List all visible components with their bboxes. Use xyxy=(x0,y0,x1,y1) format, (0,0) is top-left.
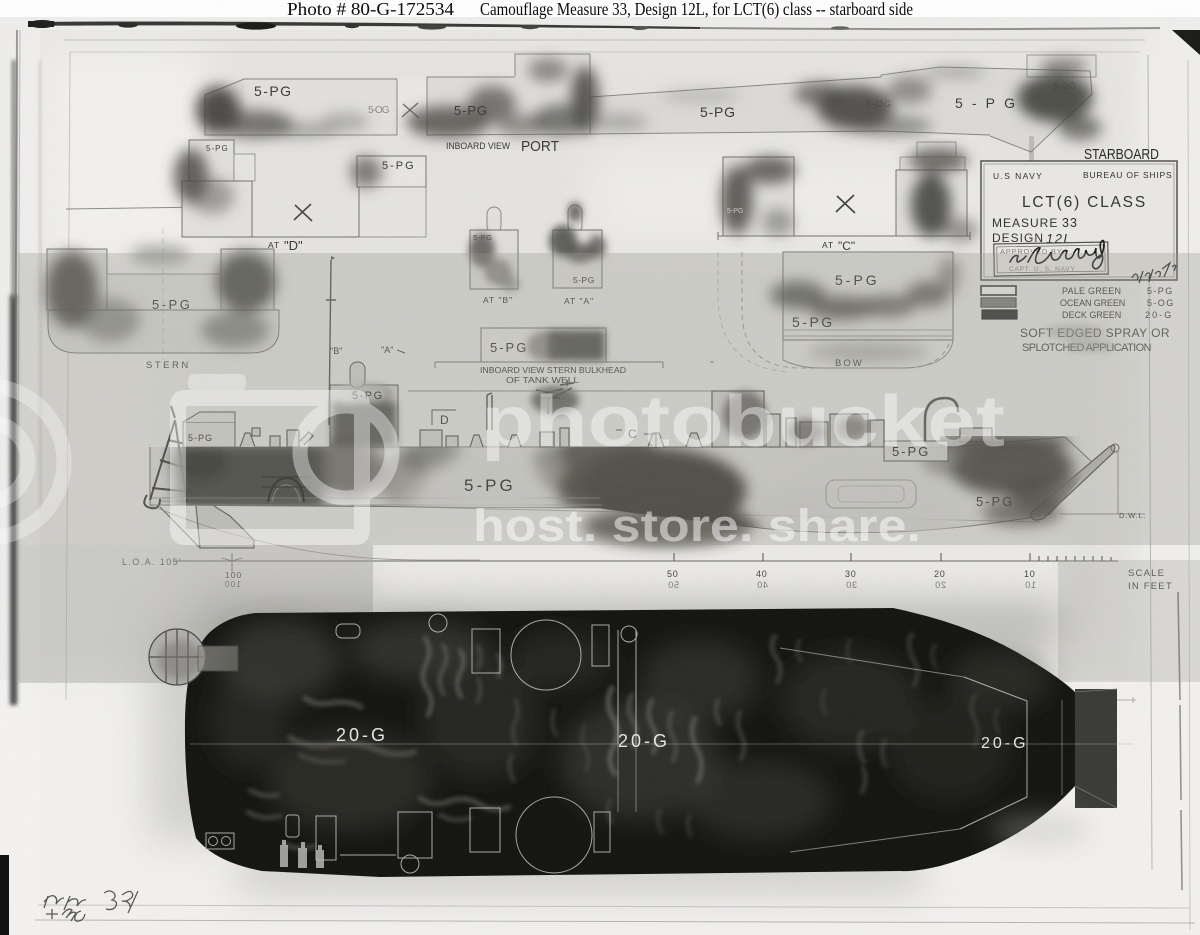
svg-text:photobucket: photobucket xyxy=(481,382,1005,462)
svg-text:Photo # 80-G-172534: Photo # 80-G-172534 xyxy=(287,0,454,19)
svg-text:Camouflage Measure 33, Design: Camouflage Measure 33, Design 12L, for L… xyxy=(480,0,913,19)
svg-text:host. store. share.: host. store. share. xyxy=(473,500,921,551)
